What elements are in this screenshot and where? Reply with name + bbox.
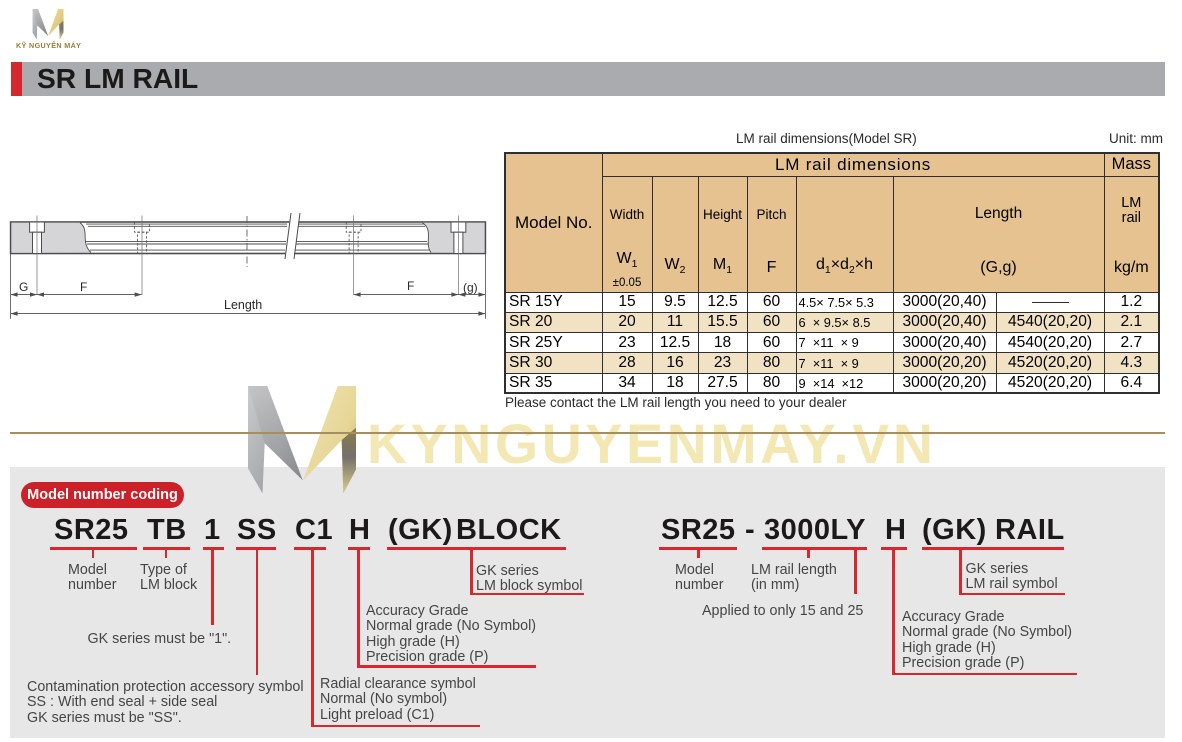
svg-text:G: G [19, 280, 28, 294]
svg-text:F: F [80, 280, 87, 294]
svg-text:Length: Length [224, 298, 262, 312]
svg-text:(g): (g) [463, 281, 478, 295]
svg-text:F: F [407, 279, 414, 293]
